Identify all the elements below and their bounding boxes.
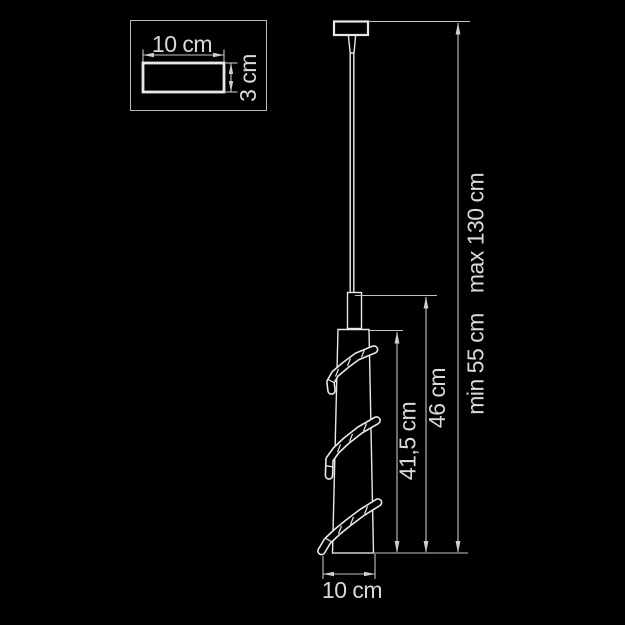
pendant-lamp-drawing: [322, 22, 379, 554]
ceiling-plate-detail-box: 10 cm 3 cm: [131, 21, 267, 111]
plate-depth-label: 3 cm: [235, 54, 261, 102]
suspension-cable: [350, 50, 354, 295]
max-suspension-label: max 130 cm: [463, 173, 489, 293]
shade-diameter-dimension: 10 cm: [322, 554, 382, 603]
shade-diameter-label: 10 cm: [322, 577, 382, 603]
fixture-height-label: 46 cm: [424, 368, 450, 428]
shade-height-dimension: 41,5 cm: [395, 332, 421, 554]
plate-width-dimension: 10 cm: [143, 31, 224, 62]
arrowhead-down: [229, 81, 233, 92]
ceiling-canopy: [334, 22, 368, 36]
plate-width-label: 10 cm: [152, 31, 212, 57]
diagram-canvas: 10 cm 3 cm: [0, 0, 625, 625]
strain-relief: [348, 35, 355, 53]
suspension-height-dimension: min 55 cm max 130 cm: [456, 23, 489, 554]
lamp-dimension-diagram: 10 cm 3 cm: [0, 0, 625, 625]
fixture-height-dimension: 46 cm: [424, 297, 450, 554]
plate-depth-dimension: 3 cm: [224, 54, 261, 102]
arrowhead-up: [229, 63, 233, 74]
ceiling-plate-top-view: [143, 63, 224, 92]
shade-height-label: 41,5 cm: [395, 402, 421, 480]
arrowhead-right: [213, 53, 224, 57]
min-suspension-label: min 55 cm: [463, 313, 489, 415]
lamp-socket: [348, 293, 362, 329]
